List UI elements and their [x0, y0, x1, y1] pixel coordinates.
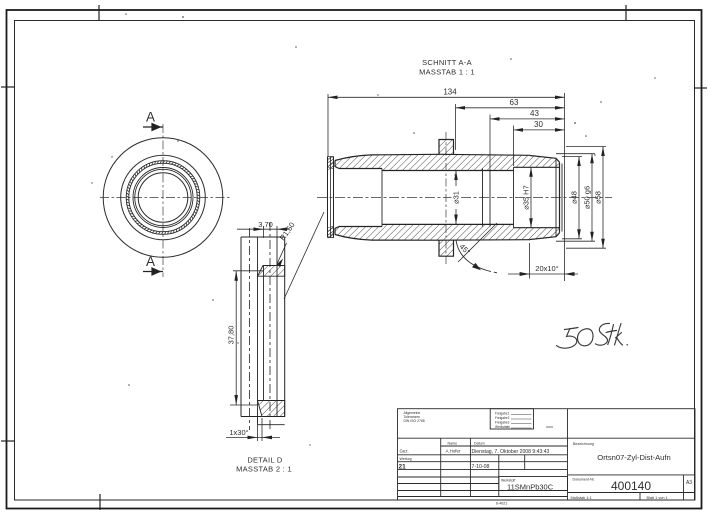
svg-text:SCHNITT A-A: SCHNITT A-A — [422, 58, 472, 67]
svg-text:A: A — [146, 110, 155, 125]
svg-text:Blatt 1 von 1: Blatt 1 von 1 — [647, 496, 668, 500]
svg-text:21: 21 — [399, 463, 407, 470]
svg-text:30: 30 — [534, 120, 543, 129]
svg-text:Freigabe3: Freigabe3 — [495, 421, 510, 425]
svg-text:1x30°: 1x30° — [229, 428, 248, 437]
svg-text:20x10°: 20x10° — [535, 264, 558, 273]
svg-text:⌀48: ⌀48 — [570, 191, 579, 204]
svg-text:DIN ISO 2768: DIN ISO 2768 — [404, 419, 425, 423]
svg-text:⌀58: ⌀58 — [594, 191, 603, 204]
svg-text:MASSTAB 2 : 1: MASSTAB 2 : 1 — [236, 465, 292, 474]
svg-text:Werkstattn: Werkstattn — [495, 425, 510, 429]
svg-text:MASSTAB 1 : 1: MASSTAB 1 : 1 — [419, 68, 475, 77]
svg-text:A.Hofer: A.Hofer — [446, 449, 461, 454]
svg-text:⌀35 H7: ⌀35 H7 — [522, 185, 531, 210]
svg-text:Dokument-Nr.: Dokument-Nr. — [573, 478, 595, 482]
svg-text:DETAIL D: DETAIL D — [247, 456, 283, 465]
svg-text:134: 134 — [443, 88, 457, 97]
svg-text:Ortsn07-Zyl-Dist-Aufn: Ortsn07-Zyl-Dist-Aufn — [597, 453, 670, 462]
svg-text:⌀50 g6: ⌀50 g6 — [583, 186, 592, 209]
svg-text:A3: A3 — [686, 480, 692, 486]
svg-text:3,70: 3,70 — [258, 220, 273, 229]
svg-text:Datum: Datum — [474, 442, 485, 446]
svg-text:400140: 400140 — [611, 479, 651, 493]
svg-text:⌀31: ⌀31 — [452, 191, 461, 204]
svg-text:43: 43 — [530, 109, 539, 118]
svg-text:11SMnPb30C: 11SMnPb30C — [507, 483, 554, 492]
svg-text:Bezeichnung: Bezeichnung — [573, 442, 594, 446]
svg-text:63: 63 — [510, 98, 519, 107]
svg-text:Gez.: Gez. — [400, 449, 409, 454]
svg-text:Freigabe2: Freigabe2 — [495, 416, 510, 420]
svg-text:37,80: 37,80 — [227, 326, 236, 345]
svg-text:Dienstag, 7. Oktober 2008 9:43: Dienstag, 7. Oktober 2008 9:43:43 — [472, 449, 550, 455]
svg-text:Maßstab 1:1: Maßstab 1:1 — [571, 496, 592, 500]
svg-text:Freigabe1: Freigabe1 — [495, 412, 510, 416]
svg-text:Name: Name — [448, 442, 458, 446]
svg-text:A: A — [146, 254, 155, 269]
svg-text:6-4021: 6-4021 — [496, 502, 507, 506]
svg-text:7-10-08: 7-10-08 — [472, 464, 490, 470]
svg-text:Werkzg: Werkzg — [400, 457, 412, 461]
